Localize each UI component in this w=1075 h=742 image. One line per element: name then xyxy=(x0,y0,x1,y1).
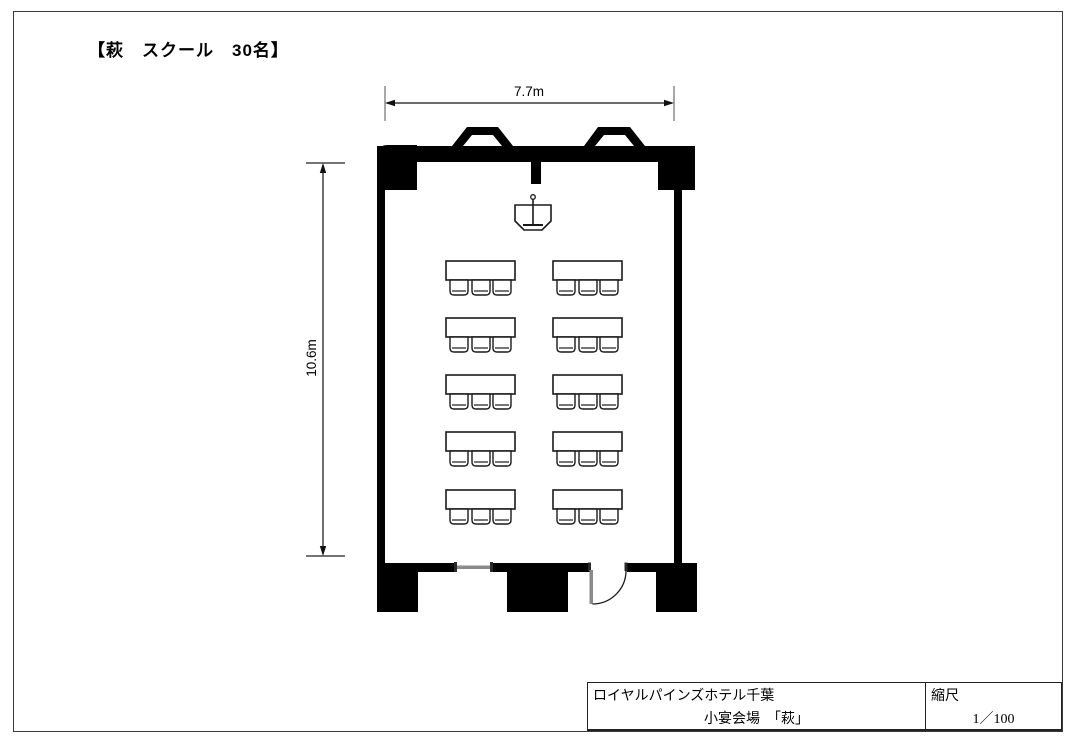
wall-bottom-center xyxy=(493,563,590,572)
title-block-scale-cell: 縮尺 1／100 xyxy=(926,683,1061,729)
width-dimension-label: 7.7m xyxy=(514,84,544,99)
chair xyxy=(493,509,511,524)
chair xyxy=(557,280,575,295)
door-swing-arc xyxy=(593,571,627,605)
chair xyxy=(557,394,575,409)
chair xyxy=(557,337,575,352)
chair xyxy=(472,337,490,352)
table xyxy=(446,261,515,280)
table xyxy=(446,432,515,451)
drawing-page: 【萩 スクール 30名】 xyxy=(0,0,1075,742)
chair xyxy=(450,451,468,466)
table-with-chairs xyxy=(446,375,515,409)
chair xyxy=(600,509,618,524)
sliding-door-jamb-left xyxy=(454,562,457,572)
chair xyxy=(557,509,575,524)
table xyxy=(446,318,515,337)
chair xyxy=(450,394,468,409)
chair xyxy=(472,509,490,524)
title-block-left-cell: ロイヤルパインズホテル千葉 小宴会場 「萩」 xyxy=(588,683,926,729)
height-dim-arrow-bottom xyxy=(320,546,326,556)
table-with-chairs xyxy=(446,261,515,295)
table-with-chairs xyxy=(553,318,622,352)
table-with-chairs xyxy=(446,318,515,352)
height-dimension: 10.6m xyxy=(304,163,345,556)
chair xyxy=(600,280,618,295)
table-with-chairs xyxy=(446,490,515,524)
chair xyxy=(450,280,468,295)
door-leaf xyxy=(590,570,594,604)
walls xyxy=(377,127,697,612)
scale-value: 1／100 xyxy=(926,708,1061,728)
table xyxy=(553,261,622,280)
pillar-bottom-right xyxy=(656,572,697,612)
wall-right xyxy=(674,162,682,563)
chair xyxy=(579,280,597,295)
chair xyxy=(579,337,597,352)
height-dimension-label: 10.6m xyxy=(304,339,319,377)
chair xyxy=(450,337,468,352)
chair xyxy=(579,451,597,466)
table xyxy=(553,318,622,337)
chair xyxy=(600,451,618,466)
table-with-chairs xyxy=(553,432,622,466)
sliding-door-panel xyxy=(457,566,490,570)
table-with-chairs xyxy=(446,432,515,466)
pillar-bottom-left xyxy=(377,572,418,612)
chair xyxy=(600,337,618,352)
table xyxy=(553,432,622,451)
table-with-chairs xyxy=(553,261,622,295)
chair xyxy=(493,394,511,409)
wall-center-stub xyxy=(531,162,541,184)
chair xyxy=(600,394,618,409)
wall-left xyxy=(377,162,385,563)
microphone-icon xyxy=(531,195,536,200)
chair xyxy=(579,394,597,409)
door-jamb-right xyxy=(625,563,628,572)
swing-door xyxy=(588,563,628,605)
chair xyxy=(450,509,468,524)
chair xyxy=(493,451,511,466)
door-jamb-left xyxy=(588,563,591,572)
sliding-door-jamb-right xyxy=(490,562,493,572)
width-dim-arrow-right xyxy=(664,100,674,106)
table xyxy=(553,375,622,394)
chair xyxy=(472,451,490,466)
chair xyxy=(472,280,490,295)
pillar-bottom-center xyxy=(507,572,568,612)
sliding-door xyxy=(454,562,493,572)
chair xyxy=(493,280,511,295)
table xyxy=(446,375,515,394)
chair xyxy=(557,451,575,466)
podium xyxy=(515,195,551,230)
width-dimension: 7.7m xyxy=(385,84,674,121)
width-dim-arrow-left xyxy=(385,100,395,106)
height-dim-arrow-top xyxy=(320,163,326,173)
tables-layer xyxy=(446,261,622,524)
chair xyxy=(472,394,490,409)
scale-label: 縮尺 xyxy=(926,683,1061,705)
hotel-name: ロイヤルパインズホテル千葉 xyxy=(588,683,925,705)
wall-top-band xyxy=(377,146,683,162)
wall-bottom-left xyxy=(377,563,455,572)
title-block: ロイヤルパインズホテル千葉 小宴会場 「萩」 縮尺 1／100 xyxy=(587,682,1062,731)
wall-bottom-right xyxy=(627,563,697,572)
chair xyxy=(493,337,511,352)
chair xyxy=(579,509,597,524)
table-with-chairs xyxy=(553,375,622,409)
room-name: 小宴会場 「萩」 xyxy=(588,708,925,728)
table xyxy=(553,490,622,509)
table xyxy=(446,490,515,509)
floor-plan: 7.7m 10.6m xyxy=(0,0,1075,742)
table-with-chairs xyxy=(553,490,622,524)
